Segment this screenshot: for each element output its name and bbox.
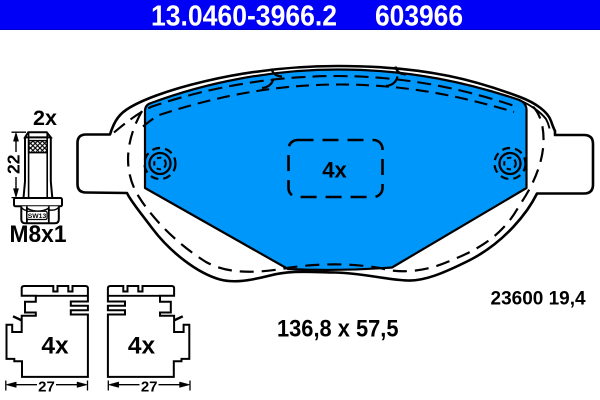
svg-text:2x: 2x xyxy=(33,106,57,130)
svg-text:SW13: SW13 xyxy=(28,213,47,220)
svg-text:23600 19,4: 23600 19,4 xyxy=(491,288,587,309)
svg-text:13.0460-3966.2: 13.0460-3966.2 xyxy=(151,1,337,33)
svg-text:136,8 x 57,5: 136,8 x 57,5 xyxy=(277,315,399,342)
svg-text:27: 27 xyxy=(38,378,55,395)
svg-text:M8x1: M8x1 xyxy=(10,221,67,248)
svg-text:4x: 4x xyxy=(128,333,156,360)
svg-text:4x: 4x xyxy=(322,158,347,183)
svg-text:4x: 4x xyxy=(41,333,69,360)
svg-text:22: 22 xyxy=(3,154,23,174)
svg-text:27: 27 xyxy=(141,378,158,395)
svg-text:603966: 603966 xyxy=(375,1,463,33)
